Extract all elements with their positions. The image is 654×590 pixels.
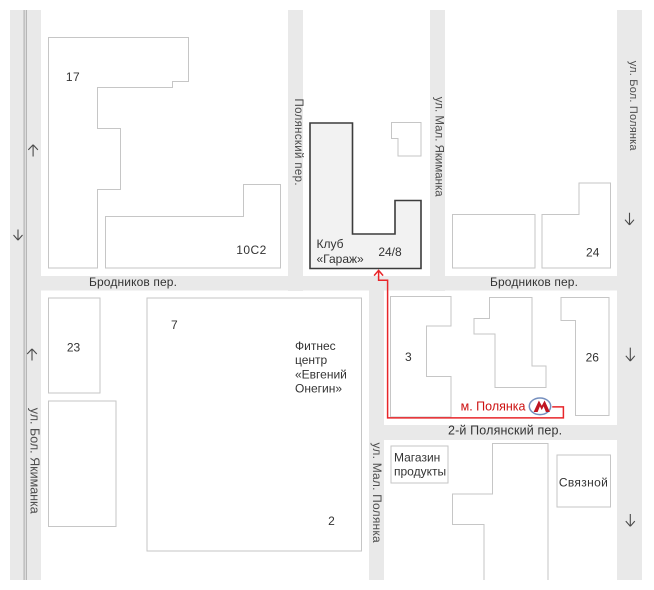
svg-text:«Гараж»: «Гараж» <box>317 252 365 266</box>
svg-text:Фитнес: Фитнес <box>295 339 336 353</box>
svg-text:24/8: 24/8 <box>378 245 402 259</box>
svg-text:«Евгений: «Евгений <box>295 367 347 381</box>
svg-text:Клуб: Клуб <box>317 237 344 251</box>
svg-text:м. Полянка: м. Полянка <box>461 400 526 414</box>
svg-text:17: 17 <box>66 70 80 84</box>
svg-text:7: 7 <box>171 318 178 332</box>
svg-text:продукты: продукты <box>394 465 446 479</box>
svg-text:ул. Мал. Полянка: ул. Мал. Полянка <box>370 443 384 544</box>
svg-text:ул. Мал. Якиманка: ул. Мал. Якиманка <box>433 97 445 197</box>
svg-text:23: 23 <box>67 340 81 354</box>
svg-text:10С2: 10С2 <box>236 243 267 257</box>
svg-text:24: 24 <box>586 245 600 259</box>
svg-text:Онегин»: Онегин» <box>295 382 342 396</box>
svg-text:Полянский пер.: Полянский пер. <box>292 99 304 186</box>
svg-text:Магазин: Магазин <box>394 451 440 465</box>
svg-text:3: 3 <box>405 350 412 364</box>
svg-text:Бродников пер.: Бродников пер. <box>89 275 177 289</box>
svg-text:Бродников пер.: Бродников пер. <box>490 275 578 289</box>
svg-text:Связной: Связной <box>559 476 608 490</box>
svg-text:2-й Полянский пер.: 2-й Полянский пер. <box>448 424 562 438</box>
svg-text:ул. Бол. Якиманка: ул. Бол. Якиманка <box>28 408 42 514</box>
svg-text:ул. Бол. Полянка: ул. Бол. Полянка <box>627 61 639 152</box>
svg-text:2: 2 <box>328 514 335 528</box>
svg-text:центр: центр <box>295 353 328 367</box>
svg-text:26: 26 <box>586 350 600 364</box>
